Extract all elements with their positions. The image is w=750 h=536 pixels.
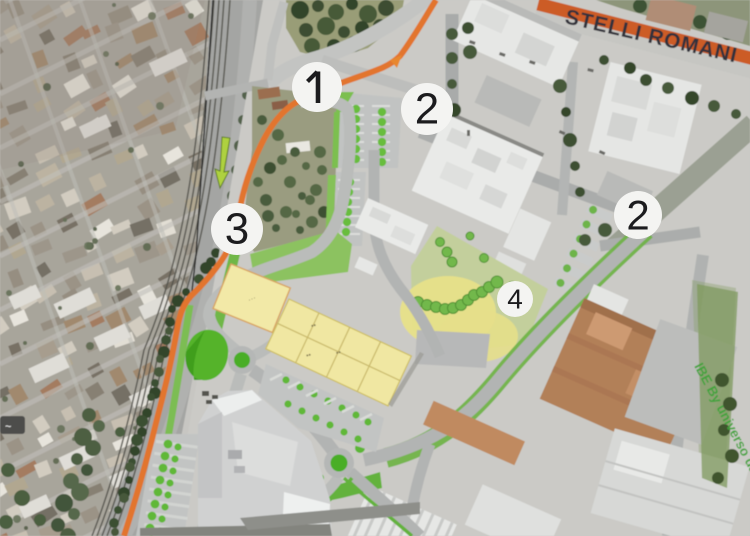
svg-text:3: 3 xyxy=(225,205,249,254)
svg-text:~: ~ xyxy=(5,421,11,433)
svg-text:4: 4 xyxy=(507,284,523,315)
svg-text:2: 2 xyxy=(626,192,649,239)
svg-text:2: 2 xyxy=(415,85,439,134)
